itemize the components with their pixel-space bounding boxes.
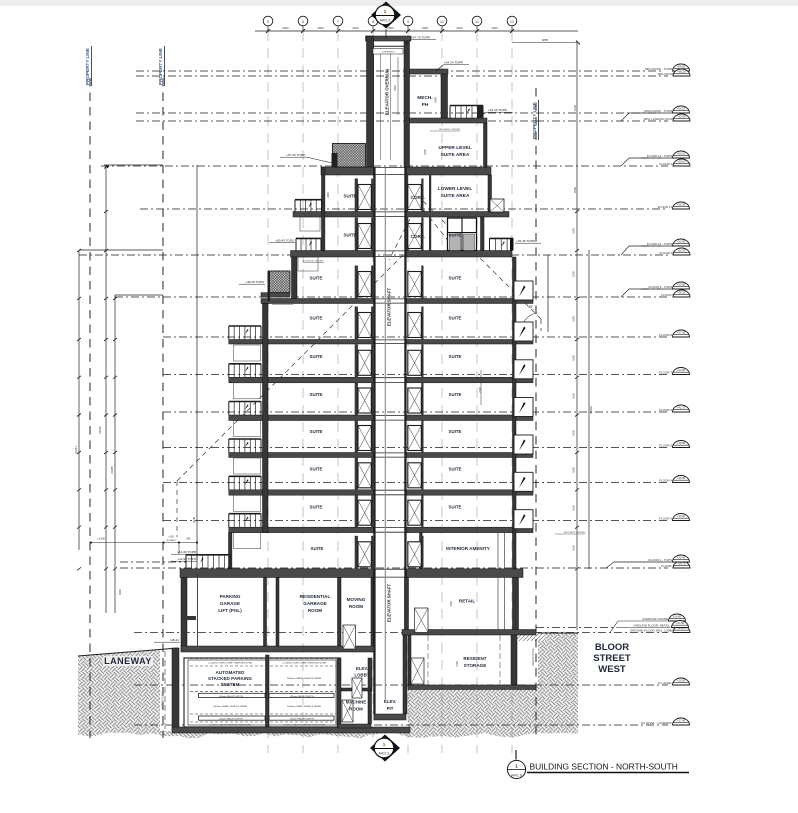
svg-text:STREET: STREET xyxy=(593,653,631,664)
svg-text:1600mm SMALL VEHICLE LAYER: 1600mm SMALL VEHICLE LAYER xyxy=(213,705,247,708)
svg-text:450mm PALLET DEPTH: 450mm PALLET DEPTH xyxy=(219,695,243,698)
svg-text:450mm PALLET DEPTH: 450mm PALLET DEPTH xyxy=(290,717,314,720)
svg-text:FLOOR 9: FLOOR 9 xyxy=(661,293,674,297)
svg-text:P1 LEVEL: P1 LEVEL xyxy=(658,681,672,685)
svg-text:P2 LEVEL - LANEWAY: P2 LEVEL - LANEWAY xyxy=(641,721,672,725)
svg-text:ELEV.: ELEV. xyxy=(356,666,368,671)
svg-text:SUITE: SUITE xyxy=(310,467,323,472)
svg-text:+47.45: +47.45 xyxy=(677,331,686,335)
svg-text:+68.20: +68.20 xyxy=(677,70,686,74)
svg-text:SUITE: SUITE xyxy=(449,354,462,359)
svg-text:+1,500mm STRUCTURE / SERVICES: +1,500mm STRUCTURE / SERVICES ZONE xyxy=(208,663,253,665)
svg-text:2400: 2400 xyxy=(326,192,330,198)
svg-text:+12.95 TOPS: +12.95 TOPS xyxy=(177,557,196,561)
svg-text:SUITE: SUITE xyxy=(310,392,323,397)
svg-text:+56.55: +56.55 xyxy=(677,203,686,207)
svg-text:SUITE: SUITE xyxy=(310,316,323,321)
svg-text:RETAIL: RETAIL xyxy=(459,599,475,604)
svg-text:FLOOR 10 - TOPS: FLOOR 10 - TOPS xyxy=(647,242,672,246)
svg-text:+30.45: +30.45 xyxy=(677,556,686,560)
svg-text:FLOOR 2: FLOOR 2 xyxy=(661,564,674,568)
svg-text:SETBACK: SETBACK xyxy=(166,539,176,542)
svg-text:3130: 3130 xyxy=(572,467,576,473)
svg-text:+57.26 TOPR: +57.26 TOPR xyxy=(286,153,306,157)
svg-text:4590: 4590 xyxy=(573,186,577,193)
svg-text:6: 6 xyxy=(302,20,304,24)
svg-text:RESIDENT: RESIDENT xyxy=(463,656,486,661)
svg-text:2100mm LARGE VEHICLE LAYER: 2100mm LARGE VEHICLE LAYER xyxy=(287,677,322,680)
svg-text:DESIGN B PILE: DESIGN B PILE xyxy=(532,648,535,666)
svg-text:PARKING: PARKING xyxy=(220,594,241,599)
svg-text:SUITE: SUITE xyxy=(449,429,462,434)
svg-text:FLOOR 10: FLOOR 10 xyxy=(659,251,674,255)
svg-text:MPH ROOF - TOPR: MPH ROOF - TOPR xyxy=(645,67,673,71)
svg-text:GB.41: GB.41 xyxy=(170,638,179,642)
svg-text:FLOOR 12 - TOPS: FLOOR 12 - TOPS xyxy=(647,154,672,158)
svg-text:ACOUSTIC CEILING: ACOUSTIC CEILING xyxy=(273,302,294,305)
svg-text:FLOOR 12: FLOOR 12 xyxy=(659,162,674,166)
svg-text:+33.20: +33.20 xyxy=(677,514,686,518)
svg-text:CORR.: CORR. xyxy=(411,234,426,239)
svg-text:3130: 3130 xyxy=(572,316,576,322)
svg-text:GARAGE: GARAGE xyxy=(220,601,240,606)
svg-text:2460: 2460 xyxy=(456,26,463,30)
svg-text:A401.S: A401.S xyxy=(380,19,392,23)
svg-text:GARBAGE: GARBAGE xyxy=(303,601,326,606)
svg-text:UPPER LEVEL: UPPER LEVEL xyxy=(438,145,471,151)
svg-text:SUITE: SUITE xyxy=(344,233,357,238)
svg-text:3130: 3130 xyxy=(572,228,576,234)
svg-text:FLOOR 7: FLOOR 7 xyxy=(659,370,672,374)
svg-text:MECH.: MECH. xyxy=(417,95,432,101)
svg-text:+36.05: +36.05 xyxy=(677,476,686,480)
svg-text:ELEVATOR OVERRUN: ELEVATOR OVERRUN xyxy=(385,69,390,115)
svg-text:5: 5 xyxy=(267,20,269,24)
svg-text:3048: 3048 xyxy=(192,516,196,523)
svg-text:SUITE: SUITE xyxy=(449,233,462,238)
svg-text:+67.76 TOPR: +67.76 TOPR xyxy=(411,36,431,40)
svg-text:+24.55: +24.55 xyxy=(676,621,685,625)
svg-text:STORAGE: STORAGE xyxy=(464,663,487,668)
svg-text:SUITE: SUITE xyxy=(449,505,462,510)
svg-text:LOWER LEVEL: LOWER LEVEL xyxy=(438,186,473,192)
svg-text:+45.45 TOPR: +45.45 TOPR xyxy=(516,239,536,243)
svg-text:3130: 3130 xyxy=(572,545,576,551)
svg-text:9: 9 xyxy=(407,20,409,24)
svg-text:PH: PH xyxy=(422,102,429,108)
svg-text:SUITE: SUITE xyxy=(310,505,323,510)
svg-text:3130: 3130 xyxy=(572,430,576,436)
svg-text:PROPERTY LINE: PROPERTY LINE xyxy=(532,102,537,139)
svg-text:+68.55: +68.55 xyxy=(677,65,686,69)
svg-text:MAIN ROOF - TOPR: MAIN ROOF - TOPR xyxy=(644,109,673,113)
svg-text:+53.90: +53.90 xyxy=(677,240,686,244)
svg-text:1600mm SMALL VEHICLE LAYER: 1600mm SMALL VEHICLE LAYER xyxy=(287,705,321,708)
svg-text:4160: 4160 xyxy=(450,601,453,607)
svg-text:+60.15: +60.15 xyxy=(677,152,686,156)
svg-text:SYSTEM: SYSTEM xyxy=(221,682,240,687)
svg-text:RESIDENTIAL: RESIDENTIAL xyxy=(300,594,331,599)
svg-text:2460: 2460 xyxy=(422,26,429,30)
svg-text:4855: 4855 xyxy=(542,38,549,42)
svg-text:2460: 2460 xyxy=(317,26,324,30)
svg-text:7: 7 xyxy=(337,20,339,24)
svg-text:WEST: WEST xyxy=(598,664,626,675)
svg-text:GROUND FLOOR, RETAIL: GROUND FLOOR, RETAIL xyxy=(634,623,671,627)
svg-text:12: 12 xyxy=(510,20,514,24)
svg-text:LOBBY: LOBBY xyxy=(354,673,369,678)
svg-text:+64.24 TOPR: +64.24 TOPR xyxy=(444,61,464,65)
svg-text:3130: 3130 xyxy=(572,355,576,361)
svg-text:SUITE: SUITE xyxy=(310,276,323,281)
svg-text:1: 1 xyxy=(515,764,518,769)
svg-text:BUILDING SECTION - NORTH-SOUTH: BUILDING SECTION - NORTH-SOUTH xyxy=(530,762,678,772)
svg-text:2460: 2460 xyxy=(352,26,359,30)
svg-text:45°: 45° xyxy=(528,305,534,309)
svg-text:+64.15: +64.15 xyxy=(677,107,686,111)
svg-text:SUITE: SUITE xyxy=(449,392,462,397)
svg-text:SUITE: SUITE xyxy=(311,546,324,551)
svg-text:3130: 3130 xyxy=(423,149,427,155)
svg-text:A401.S: A401.S xyxy=(511,774,523,778)
svg-text:LANEWAY: LANEWAY xyxy=(104,656,152,666)
svg-text:BLOOR: BLOOR xyxy=(595,642,629,653)
svg-text:ELEVATOR SHAFT: ELEVATOR SHAFT xyxy=(387,584,392,623)
svg-text:+41.75: +41.75 xyxy=(677,406,686,410)
svg-text:ROOM: ROOM xyxy=(349,707,363,712)
svg-text:21085: 21085 xyxy=(110,466,114,474)
svg-text:5340: 5340 xyxy=(393,85,397,91)
svg-text:+50.45 TOPS: +50.45 TOPS xyxy=(275,239,294,243)
svg-text:GROUND FLOOR, RES. LOBBY: GROUND FLOOR, RES. LOBBY xyxy=(630,628,674,632)
svg-text:2460: 2460 xyxy=(387,26,394,30)
svg-text:11: 11 xyxy=(475,20,479,24)
svg-text:+24.85: +24.85 xyxy=(673,615,682,619)
svg-text:SUITE: SUITE xyxy=(449,276,462,281)
svg-text:450mm PALLET DEPTH: 450mm PALLET DEPTH xyxy=(219,717,243,720)
svg-text:ROOM: ROOM xyxy=(349,604,363,609)
svg-text:FLOOR 11: FLOOR 11 xyxy=(658,205,673,209)
svg-text:2130: 2130 xyxy=(573,104,577,111)
svg-text:+53.35: +53.35 xyxy=(677,249,686,253)
svg-text:31261: 31261 xyxy=(74,446,78,454)
svg-text:+50.30: +50.30 xyxy=(677,291,686,295)
svg-text:AUTOMATED: AUTOMATED xyxy=(216,670,246,675)
svg-text:+100: +100 xyxy=(168,536,174,539)
svg-text:PIT: PIT xyxy=(387,706,394,711)
svg-text:ACOUSTIC CEILING: ACOUSTIC CEILING xyxy=(303,260,324,263)
svg-text:2460: 2460 xyxy=(282,26,289,30)
svg-text:FLOOR 2 - TOPS: FLOOR 2 - TOPS xyxy=(648,558,672,562)
svg-text:+38.90: +38.90 xyxy=(677,441,686,445)
svg-text:+48.45 TOPS: +48.45 TOPS xyxy=(245,280,264,284)
svg-text:ELEV.: ELEV. xyxy=(384,699,396,704)
svg-text:450mm PALLET DEPTH: 450mm PALLET DEPTH xyxy=(290,695,314,698)
svg-text:LIFT (PGL): LIFT (PGL) xyxy=(218,608,242,613)
svg-text:SUITE: SUITE xyxy=(310,354,323,359)
svg-text:9000: 9000 xyxy=(118,589,122,595)
svg-text:+44.60: +44.60 xyxy=(677,368,686,372)
svg-text:MOVING: MOVING xyxy=(347,597,366,602)
svg-text:STACKED PARKING: STACKED PARKING xyxy=(208,676,252,681)
svg-text:+1,500mm PALLET SUPPORT STRUCT: +1,500mm PALLET SUPPORT STRUCTURE xyxy=(209,723,252,726)
svg-text:CORR.: CORR. xyxy=(411,195,426,200)
svg-text:10: 10 xyxy=(440,20,444,24)
svg-text:FLOOR 3: FLOOR 3 xyxy=(659,516,672,520)
svg-text:SUITE AREA: SUITE AREA xyxy=(441,193,470,199)
svg-text:+59.60: +59.60 xyxy=(677,160,686,164)
svg-text:8: 8 xyxy=(372,20,374,24)
svg-text:+50.85: +50.85 xyxy=(677,283,686,287)
svg-text:AVERAGE GRADE: AVERAGE GRADE xyxy=(642,617,668,621)
svg-text:SUITE: SUITE xyxy=(449,467,462,472)
svg-text:COMPRESSOR: COMPRESSOR xyxy=(382,52,396,54)
svg-text:PROPERTY LINE: PROPERTY LINE xyxy=(158,48,163,85)
svg-text:880: 880 xyxy=(187,538,192,541)
svg-text:SUITE: SUITE xyxy=(344,194,357,199)
svg-text:ROOM: ROOM xyxy=(308,608,322,613)
svg-text:ACOUSTIC CEILING: ACOUSTIC CEILING xyxy=(564,531,585,534)
svg-text:3130: 3130 xyxy=(572,393,576,399)
svg-text:24630: 24630 xyxy=(98,426,102,434)
svg-text:37800: 37800 xyxy=(589,406,593,414)
svg-text:FLOOR 6: FLOOR 6 xyxy=(659,408,672,412)
svg-text:2383: 2383 xyxy=(434,97,438,103)
svg-text:ACOUSTIC CEILING: ACOUSTIC CEILING xyxy=(439,128,460,131)
svg-text:INTERIOR AMENITY: INTERIOR AMENITY xyxy=(446,546,490,551)
svg-text:+63.65: +63.65 xyxy=(677,115,686,119)
svg-text:+20.35: +20.35 xyxy=(677,679,686,683)
svg-text:FLOOR 8: FLOOR 8 xyxy=(659,333,672,337)
svg-text:MPH ROOF: MPH ROOF xyxy=(658,72,674,76)
svg-text:MACHINE: MACHINE xyxy=(346,700,367,705)
svg-text:+1,500mm PALLET SUPPORT STRUCT: +1,500mm PALLET SUPPORT STRUCTURE xyxy=(283,723,326,726)
svg-text:MPH LANDING ROOF: MPH LANDING ROOF xyxy=(644,117,675,121)
svg-text:FLOOR 9 - TOPS: FLOOR 9 - TOPS xyxy=(648,285,672,289)
svg-text:+13.30 TOPR: +13.30 TOPR xyxy=(177,550,197,554)
svg-text:FLOOR 4: FLOOR 4 xyxy=(659,478,672,482)
svg-text:+1,500: +1,500 xyxy=(97,537,106,541)
svg-text:FLOOR 5: FLOOR 5 xyxy=(659,443,672,447)
svg-text:+1,500mm STRUCTURE / SERVICES: +1,500mm STRUCTURE / SERVICES ZONE xyxy=(282,663,327,665)
svg-text:2130: 2130 xyxy=(478,387,482,393)
svg-text:2460: 2460 xyxy=(491,26,498,30)
svg-text:3130: 3130 xyxy=(572,271,576,277)
svg-text:SUITE AREA: SUITE AREA xyxy=(441,152,470,158)
svg-text:A401.S: A401.S xyxy=(379,752,391,756)
svg-text:DESIGN B PILE: DESIGN B PILE xyxy=(162,691,165,709)
svg-text:ELEVATOR SHAFT: ELEVATOR SHAFT xyxy=(387,288,392,327)
svg-text:SUITE: SUITE xyxy=(449,316,462,321)
svg-text:+17.45: +17.45 xyxy=(677,719,686,723)
svg-text:3130: 3130 xyxy=(572,505,576,511)
svg-text:SUITE: SUITE xyxy=(310,429,323,434)
svg-text:+61.26 TOPR: +61.26 TOPR xyxy=(488,108,508,112)
svg-text:4160: 4160 xyxy=(456,661,459,667)
svg-text:PROPERTY LINE: PROPERTY LINE xyxy=(85,48,90,85)
